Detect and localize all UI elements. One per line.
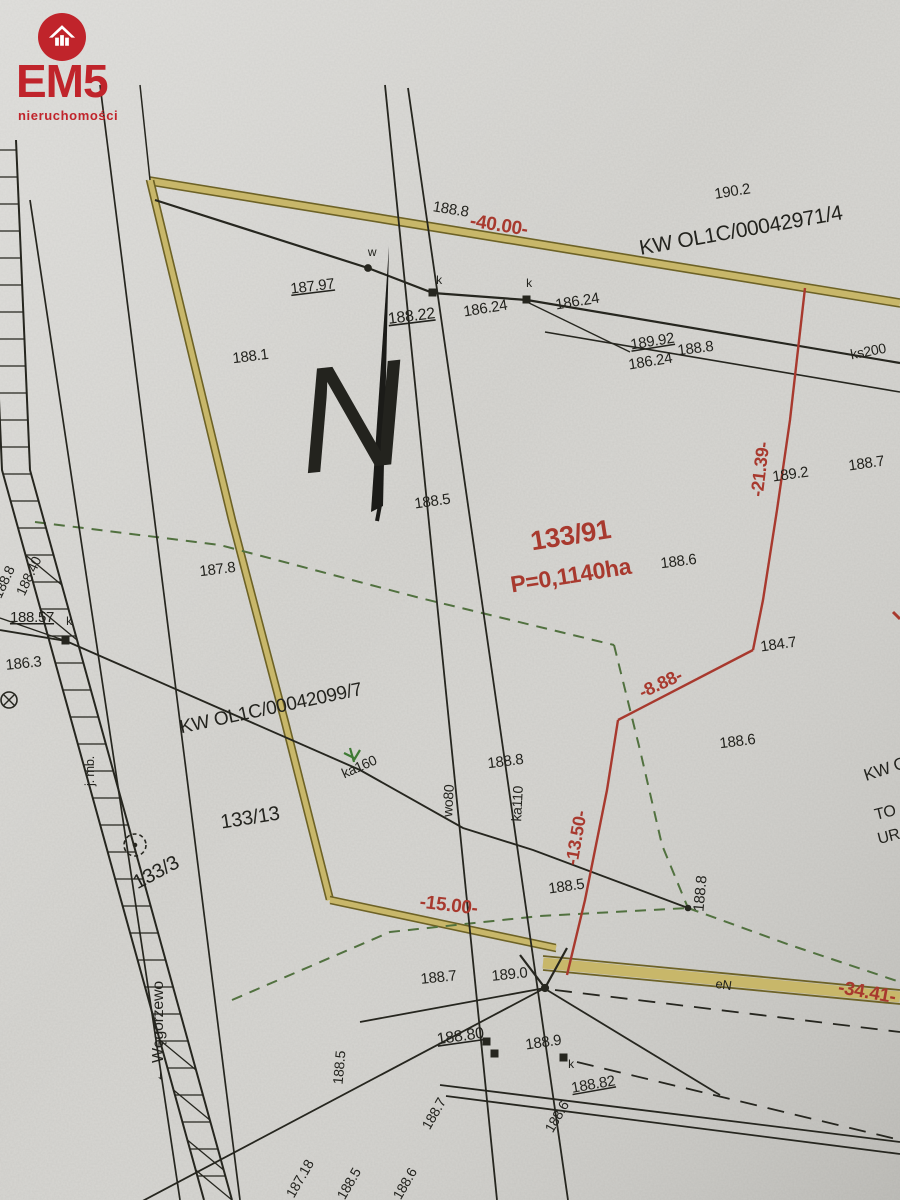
map-label: 188.8 xyxy=(690,875,710,912)
map-label: ← Węgorzewo xyxy=(150,981,167,1083)
map-label: eN xyxy=(715,976,733,993)
map-label: w xyxy=(367,245,377,259)
map-label: j. mb. xyxy=(82,756,97,787)
cadastral-map: 190.2KW OL1C/00042971/4188.8-40.00-187.9… xyxy=(0,0,900,1200)
map-label: ka110 xyxy=(508,785,526,822)
paper-shading xyxy=(0,0,900,1200)
em5-logo: EM5 nieruchomości xyxy=(0,0,200,180)
map-label: 188.5 xyxy=(330,1050,349,1085)
scanned-cadastral-map: 190.2KW OL1C/00042971/4188.8-40.00-187.9… xyxy=(0,0,900,1200)
logo-brand-text: EM5 xyxy=(16,58,108,104)
map-label: 188.57 xyxy=(10,609,54,626)
house-icon xyxy=(38,13,86,61)
map-label: wo80 xyxy=(439,784,457,819)
north-letter: N xyxy=(289,327,415,505)
logo-subtitle: nieruchomości xyxy=(18,108,118,123)
